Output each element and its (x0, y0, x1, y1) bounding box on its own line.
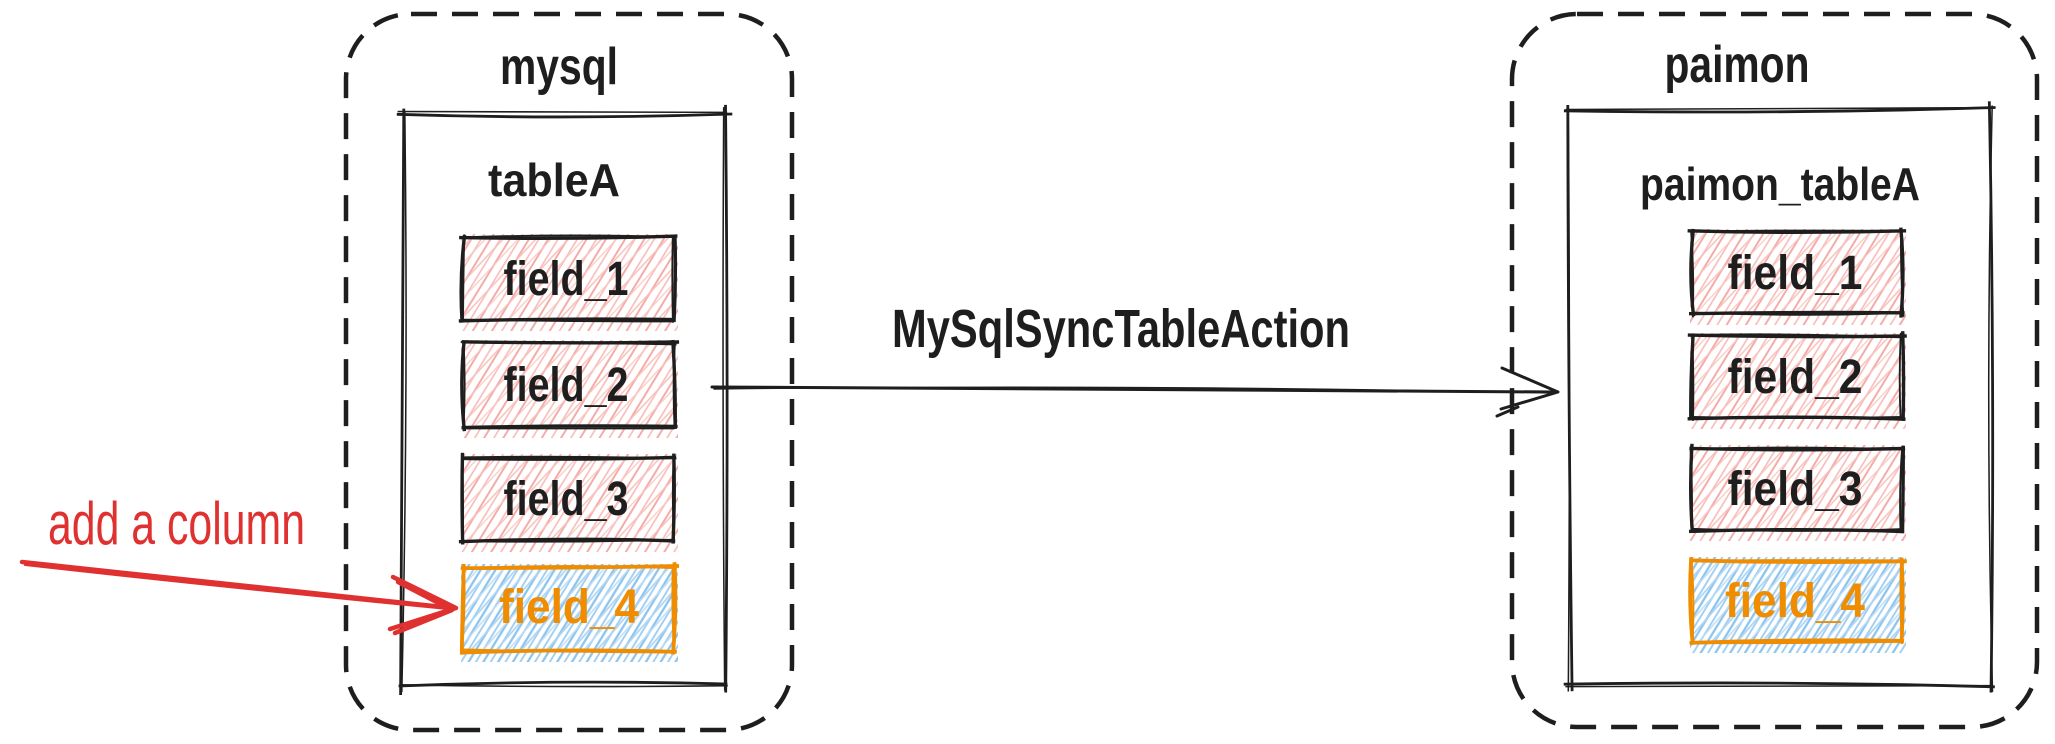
svg-text:field_2: field_2 (1728, 351, 1863, 404)
svg-text:field_4: field_4 (1725, 575, 1865, 628)
svg-text:field_3: field_3 (504, 473, 629, 526)
svg-text:field_4: field_4 (499, 581, 639, 634)
svg-text:paimon: paimon (1665, 36, 1810, 94)
svg-text:MySqlSyncTableAction: MySqlSyncTableAction (892, 299, 1350, 359)
svg-text:tableA: tableA (488, 154, 620, 206)
svg-text:field_2: field_2 (504, 359, 629, 412)
svg-text:mysql: mysql (500, 38, 618, 96)
svg-text:field_3: field_3 (1728, 463, 1863, 516)
svg-text:field_1: field_1 (504, 253, 629, 306)
svg-text:field_1: field_1 (1728, 247, 1863, 300)
svg-text:add a column: add a column (48, 490, 305, 557)
svg-text:paimon_tableA: paimon_tableA (1640, 158, 1920, 210)
